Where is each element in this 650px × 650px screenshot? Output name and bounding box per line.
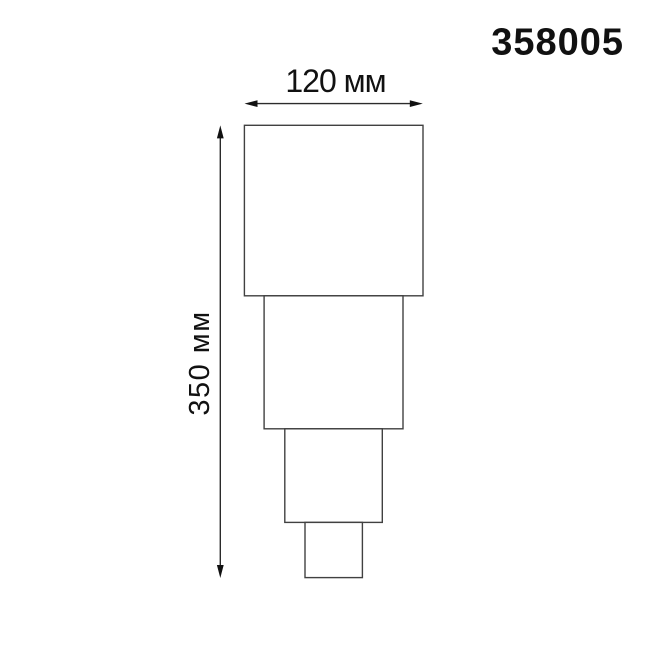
svg-text:358005: 358005: [491, 22, 624, 64]
svg-text:120 мм: 120 мм: [285, 63, 385, 99]
svg-text:350 мм: 350 мм: [184, 310, 216, 415]
